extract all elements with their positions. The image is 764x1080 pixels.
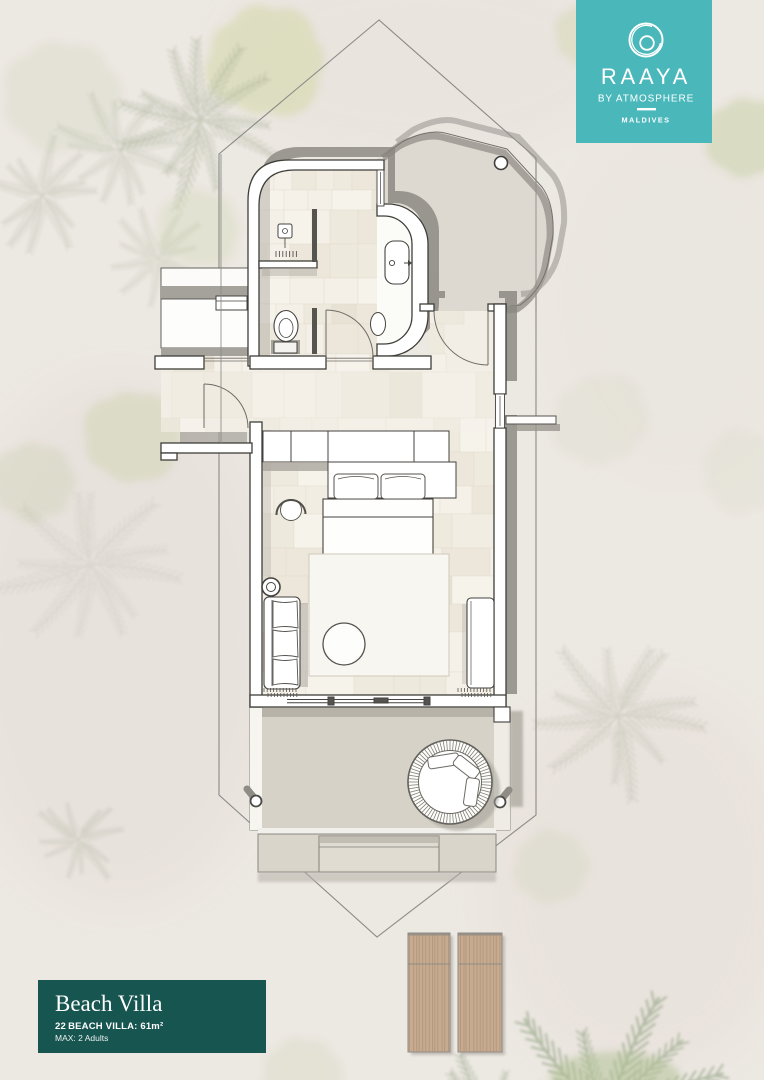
- svg-text:MAX: 2 Adults: MAX: 2 Adults: [55, 1033, 108, 1043]
- svg-text:MALDIVES: MALDIVES: [622, 116, 671, 125]
- svg-text:22 BEACH VILLA: 61m²: 22 BEACH VILLA: 61m²: [55, 1021, 163, 1032]
- svg-text:BY ATMOSPHERE: BY ATMOSPHERE: [598, 94, 694, 105]
- svg-text:RAAYA: RAAYA: [601, 64, 691, 89]
- svg-text:Beach Villa: Beach Villa: [55, 991, 162, 1016]
